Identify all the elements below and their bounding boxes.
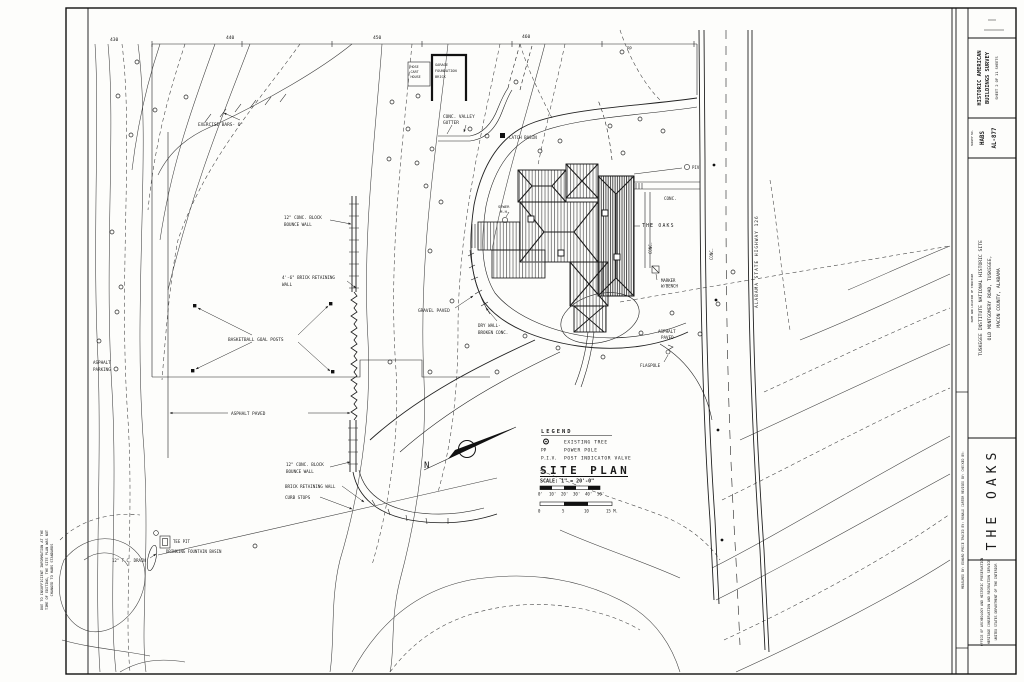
marker-label-2: W/BENCH	[661, 284, 678, 289]
flagpole-label: FLAGPOLE	[640, 363, 661, 368]
gravel-paved-label: GRAVEL PAVED	[418, 308, 450, 314]
piv-label: PIV	[692, 165, 700, 170]
brick-lower-label: BRICK RETAINING WALL	[285, 484, 336, 489]
garage-label-3: BRICK	[435, 75, 447, 79]
bounce-upper-label-1: 12" CONC. BLOCK	[284, 215, 322, 220]
met-tick-15: 15 M.	[606, 509, 618, 514]
habs-drawing-sheet: 430 440 450 460 EXERCISE BARS- 6" HOSE C…	[0, 0, 1024, 682]
north-label: N	[424, 461, 429, 471]
site-plan-title: SITE PLAN	[540, 464, 630, 477]
agency-line-3: UNITED STATES DEPARTMENT OF THE INTERIOR	[994, 564, 998, 641]
imp-tick-40: 40'	[585, 492, 592, 497]
tee-pit-label: TEE PIT	[173, 539, 190, 544]
sewer-mh-label-2: M.H.	[500, 209, 509, 214]
curb-stops-label: CURB STOPS	[285, 495, 311, 500]
asphalt-parking-label-1: ASPHALT	[93, 360, 111, 365]
the-oaks-label: THE OAKS	[642, 223, 675, 229]
location-line-3: MACON COUNTY, ALABAMA	[996, 268, 1002, 327]
exercise-bars-label: EXERCISE BARS- 6"	[198, 122, 243, 128]
site-plan-svg: 430 440 450 460 EXERCISE BARS- 6" HOSE C…	[0, 0, 1024, 682]
legend-existing-tree: EXISTING TREE	[564, 440, 608, 446]
catch-basin-label: CATCH BASIN	[509, 135, 537, 140]
margin-note-3: CHANGED TO HABS STANDARDS	[50, 544, 54, 597]
habs-sheet-line: SHEET 2 OF 11 SHEETS	[995, 56, 999, 99]
contour-label-440: 440	[226, 35, 235, 41]
habs-title-2: BUILDINGS SURVEY	[985, 51, 991, 104]
hose-cart-label-3: HOUSE	[411, 75, 421, 79]
imp-tick-50: 50'	[597, 492, 604, 497]
bounce-lower-label-1: 12" CONC. BLOCK	[286, 462, 324, 467]
garage-label-2: FOUNDATION	[435, 69, 457, 73]
tc-drain-label: 12" T.C. DRAIN	[112, 558, 146, 563]
contour-label-460: 460	[522, 34, 531, 40]
hose-cart-label-1: HOSE	[411, 65, 419, 69]
sheet-background	[0, 0, 1024, 682]
survey-no-habs: HABS	[980, 131, 986, 145]
hose-cart-label-2: CART	[411, 70, 419, 74]
agency-line-2: HERITAGE CONSERVATION AND RECREATION SER…	[987, 560, 991, 645]
bounce-lower-label-2: BOUNCE WALL	[286, 469, 314, 474]
contour-label-430: 430	[110, 37, 119, 43]
asphalt-parking-label-2: PARKING	[93, 367, 111, 372]
imp-tick-30: 30'	[573, 492, 580, 497]
asphalt-center-label: ASPHALT PAVED	[231, 411, 266, 417]
power-pole-label: PP	[627, 46, 632, 51]
marker-label-1: MARKER	[661, 278, 676, 283]
contour-label-450: 450	[373, 35, 382, 41]
habs-title-1: HISTORIC AMERICAN	[977, 50, 983, 105]
agency-line-1: OFFICE OF ARCHEOLOGY AND HISTORIC PRESER…	[980, 558, 984, 646]
legend-piv-symbol: P.I.V.	[541, 456, 557, 462]
highway-label: ALABAMA STATE HIGHWAY 126	[754, 215, 760, 308]
location-header: NAME AND LOCATION OF STRUCTURE	[970, 273, 974, 322]
legend-title: LEGEND	[541, 429, 572, 435]
garage-label-1: GARAGE	[435, 63, 448, 67]
survey-no-value: AL-877	[992, 127, 998, 148]
imp-tick-10: 10'	[549, 492, 556, 497]
conc-sidewalk-label: CONC.	[709, 248, 714, 260]
bounce-upper-label-2: BOUNCE WALL	[284, 222, 312, 227]
margin-note-2: TIME OF EDITING, THE SITE PLAN WAS NOT	[45, 529, 49, 610]
dry-wall-label-2: BROKEN CONC.	[478, 330, 508, 335]
margin-note-1: DUE TO INSUFFICIENT INFORMATION AT THE	[40, 530, 44, 610]
imp-tick-20: 20'	[561, 492, 568, 497]
fountain-label: DRINKING FOUNTAIN BASIN	[166, 549, 222, 554]
legend-power-pole: POWER POLE	[564, 448, 598, 454]
met-tick-10: 10	[584, 509, 589, 514]
credits-line: MEASURED BY: EDWARD PRICE TRACED BY: RON…	[961, 451, 965, 589]
survey-no-header: SURVEY NO.	[970, 130, 974, 146]
conc-walk-label: CONC.	[648, 242, 653, 254]
asphalt-east-label-1: ASPHALT	[658, 329, 676, 334]
location-line-2: OLD MONTGOMERY ROAD, TUSKEGEE,	[987, 256, 993, 341]
basketball-label: BASKETBALL GOAL POSTS	[228, 337, 284, 343]
legend-post-indicator-valve: POST INDICATOR VALVE	[564, 456, 631, 462]
dry-wall-label-1: DRY WALL-	[478, 323, 501, 328]
valley-gutter-label-1: CONC. VALLEY	[443, 114, 475, 120]
imp-tick-0: 0'	[538, 492, 543, 497]
brick-upper-label-1: 4'-6" BRICK RETAINING	[282, 275, 335, 280]
brick-upper-label-2: WALL	[282, 282, 293, 287]
structure-name: THE OAKS	[985, 448, 1000, 551]
asphalt-east-label-2: PAVED	[661, 335, 674, 340]
location-line-1: TUSKEGEE INSTITUTE NATIONAL HISTORIC SIT…	[978, 240, 984, 356]
scale-note: SCALE: 1" = 20'-0"	[540, 479, 594, 485]
valley-gutter-label-2: GUTTER	[443, 120, 459, 126]
legend-pp-symbol: PP	[541, 448, 547, 454]
conc-front-label: CONC.	[664, 196, 677, 201]
